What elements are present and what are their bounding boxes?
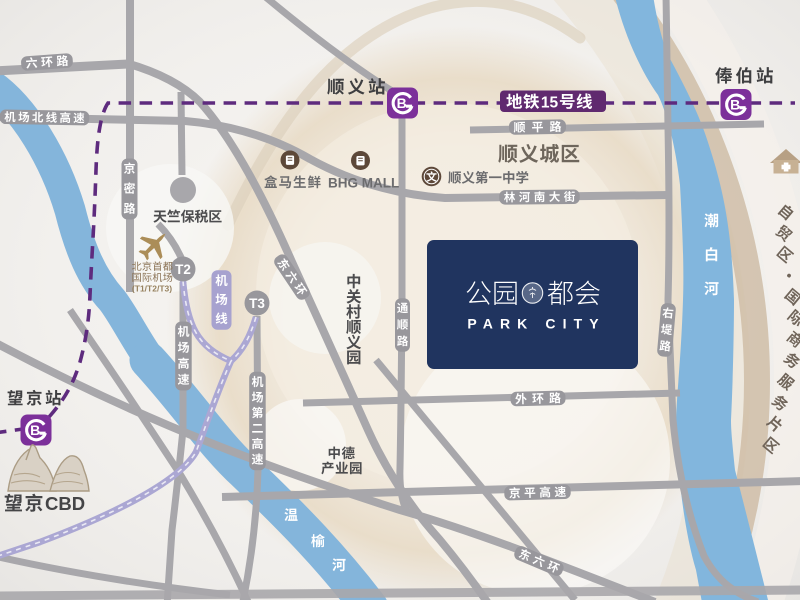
svg-text:PARK CITY: PARK CITY [467, 316, 605, 332]
svg-text:BHG MALL: BHG MALL [328, 176, 399, 191]
svg-text:B: B [397, 95, 407, 111]
svg-text:T3: T3 [249, 296, 265, 311]
svg-text:B: B [730, 97, 740, 113]
svg-text:CBD: CBD [45, 493, 85, 514]
svg-text:T2: T2 [175, 262, 191, 277]
svg-text:15: 15 [541, 95, 559, 112]
svg-text:B: B [30, 422, 40, 438]
svg-text:(T1/T2/T3): (T1/T2/T3) [132, 284, 172, 294]
